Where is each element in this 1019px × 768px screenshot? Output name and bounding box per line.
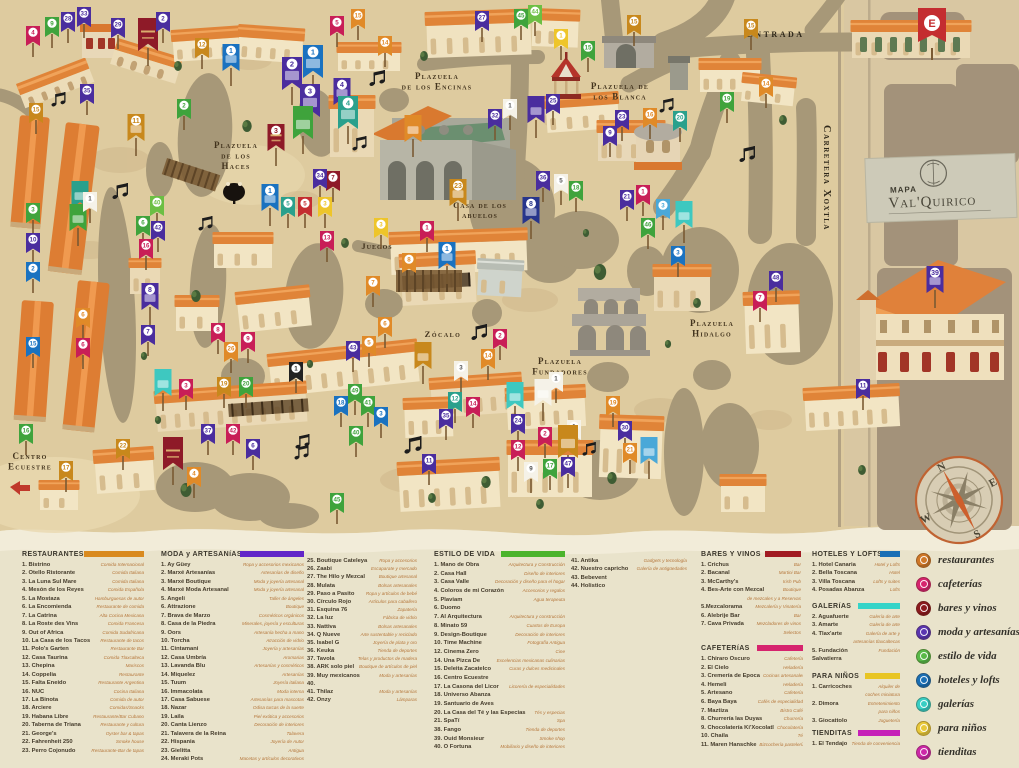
svg-text:5: 5: [335, 19, 339, 26]
svg-text:26: 26: [228, 345, 235, 352]
svg-text:23: 23: [619, 113, 626, 120]
svg-text:17: 17: [547, 462, 554, 469]
svg-text:21: 21: [627, 446, 634, 453]
svg-text:5: 5: [286, 200, 290, 207]
svg-text:2: 2: [498, 332, 502, 339]
svg-text:2: 2: [290, 60, 294, 69]
svg-text:35: 35: [443, 412, 450, 419]
svg-text:3: 3: [323, 200, 327, 207]
svg-text:19: 19: [724, 95, 731, 102]
svg-text:13: 13: [324, 234, 331, 241]
svg-text:9: 9: [529, 465, 533, 472]
svg-text:40: 40: [154, 199, 161, 206]
svg-text:1: 1: [559, 32, 563, 39]
svg-text:1: 1: [554, 375, 558, 382]
svg-text:18: 18: [573, 184, 580, 191]
svg-text:19: 19: [610, 399, 617, 406]
svg-text:7: 7: [146, 328, 150, 335]
svg-text:9: 9: [50, 20, 54, 27]
svg-text:6: 6: [141, 219, 145, 226]
svg-text:27: 27: [479, 14, 486, 21]
svg-text:1: 1: [88, 195, 92, 202]
svg-text:5: 5: [559, 177, 563, 184]
svg-text:14: 14: [763, 80, 770, 87]
svg-text:19: 19: [221, 380, 228, 387]
svg-text:1: 1: [425, 224, 429, 231]
svg-text:10: 10: [30, 236, 37, 243]
svg-text:7: 7: [758, 294, 762, 301]
svg-text:1: 1: [508, 102, 512, 109]
svg-text:11: 11: [860, 382, 867, 389]
svg-text:6: 6: [251, 442, 255, 449]
svg-text:22: 22: [120, 442, 127, 449]
svg-text:8: 8: [529, 201, 533, 208]
svg-text:15: 15: [355, 12, 362, 19]
svg-text:8: 8: [148, 287, 152, 294]
svg-text:12: 12: [515, 443, 522, 450]
svg-text:1: 1: [268, 188, 272, 195]
svg-text:2: 2: [543, 430, 547, 437]
svg-text:Plazuela delos Blanca: Plazuela delos Blanca: [591, 81, 649, 102]
svg-text:3: 3: [308, 87, 312, 96]
svg-text:8: 8: [216, 326, 220, 333]
svg-text:1: 1: [311, 48, 315, 57]
svg-text:6: 6: [81, 311, 85, 318]
svg-text:1: 1: [445, 246, 449, 253]
svg-text:9: 9: [246, 335, 250, 342]
svg-text:3: 3: [274, 128, 278, 135]
svg-text:15: 15: [585, 44, 592, 51]
svg-text:16: 16: [23, 427, 30, 434]
svg-text:Carretera Xoxtla: Carretera Xoxtla: [821, 125, 832, 231]
svg-text:36: 36: [540, 174, 547, 181]
svg-text:41: 41: [365, 399, 372, 406]
svg-text:5: 5: [367, 339, 371, 346]
svg-text:4: 4: [340, 82, 344, 89]
svg-text:46: 46: [645, 221, 652, 228]
svg-text:14: 14: [382, 39, 389, 46]
svg-text:42: 42: [230, 427, 237, 434]
svg-text:Juegos: Juegos: [361, 241, 392, 251]
svg-text:6: 6: [81, 341, 85, 348]
svg-text:1: 1: [294, 365, 298, 372]
svg-text:25: 25: [550, 97, 557, 104]
svg-text:2: 2: [31, 265, 35, 272]
svg-text:37: 37: [205, 427, 212, 434]
svg-text:2: 2: [182, 102, 186, 109]
svg-text:33: 33: [81, 10, 88, 17]
svg-text:1: 1: [229, 48, 233, 55]
svg-text:9: 9: [608, 129, 612, 136]
svg-text:6: 6: [383, 320, 387, 327]
svg-text:MAPA: MAPA: [890, 185, 917, 195]
svg-text:5: 5: [303, 200, 307, 207]
svg-text:Val'Quirico: Val'Quirico: [888, 193, 976, 212]
svg-text:40: 40: [353, 429, 360, 436]
svg-text:3: 3: [459, 364, 463, 371]
svg-text:43: 43: [350, 344, 357, 351]
svg-text:3: 3: [676, 249, 680, 256]
svg-text:45: 45: [334, 496, 341, 503]
svg-text:11: 11: [426, 457, 433, 464]
svg-text:3: 3: [184, 382, 188, 389]
svg-text:Zócalo: Zócalo: [425, 329, 462, 339]
svg-text:8: 8: [407, 256, 411, 263]
svg-text:4: 4: [192, 470, 196, 477]
svg-text:44: 44: [532, 8, 539, 15]
svg-text:3: 3: [379, 410, 383, 417]
svg-text:45: 45: [518, 12, 525, 19]
svg-text:48: 48: [773, 274, 780, 281]
svg-text:14: 14: [485, 352, 492, 359]
svg-text:39: 39: [931, 270, 939, 277]
svg-text:18: 18: [338, 399, 345, 406]
svg-text:47: 47: [565, 460, 572, 467]
svg-text:1: 1: [641, 188, 645, 195]
svg-text:16: 16: [647, 111, 654, 118]
svg-text:21: 21: [624, 193, 631, 200]
svg-text:E: E: [928, 18, 935, 30]
svg-text:34: 34: [317, 172, 324, 179]
svg-text:15: 15: [748, 22, 755, 29]
svg-text:4: 4: [31, 29, 35, 36]
svg-text:20: 20: [243, 380, 250, 387]
svg-text:24: 24: [515, 417, 522, 424]
svg-text:PlazuelaHidalgo: PlazuelaHidalgo: [690, 318, 734, 339]
svg-text:49: 49: [352, 387, 359, 394]
svg-text:12: 12: [452, 395, 459, 402]
svg-text:29: 29: [115, 21, 122, 28]
svg-text:20: 20: [677, 114, 684, 121]
svg-text:23: 23: [454, 183, 462, 190]
svg-text:15: 15: [631, 18, 638, 25]
svg-text:11: 11: [132, 118, 140, 125]
svg-text:16: 16: [143, 242, 150, 249]
svg-text:30: 30: [622, 424, 629, 431]
svg-text:15: 15: [30, 340, 37, 347]
svg-text:7: 7: [331, 174, 335, 181]
svg-text:14: 14: [470, 400, 477, 407]
svg-text:15: 15: [33, 106, 40, 113]
svg-text:17: 17: [63, 464, 70, 471]
svg-text:42: 42: [155, 224, 162, 231]
svg-text:CentroEcuestre: CentroEcuestre: [8, 451, 52, 472]
svg-text:2: 2: [161, 15, 165, 22]
svg-text:32: 32: [492, 112, 499, 119]
svg-text:3: 3: [31, 206, 35, 213]
svg-text:7: 7: [371, 279, 375, 286]
svg-text:12: 12: [199, 41, 206, 48]
svg-text:3: 3: [661, 202, 665, 209]
svg-text:3: 3: [379, 221, 383, 228]
svg-text:28: 28: [65, 15, 72, 22]
svg-text:35: 35: [84, 87, 91, 94]
